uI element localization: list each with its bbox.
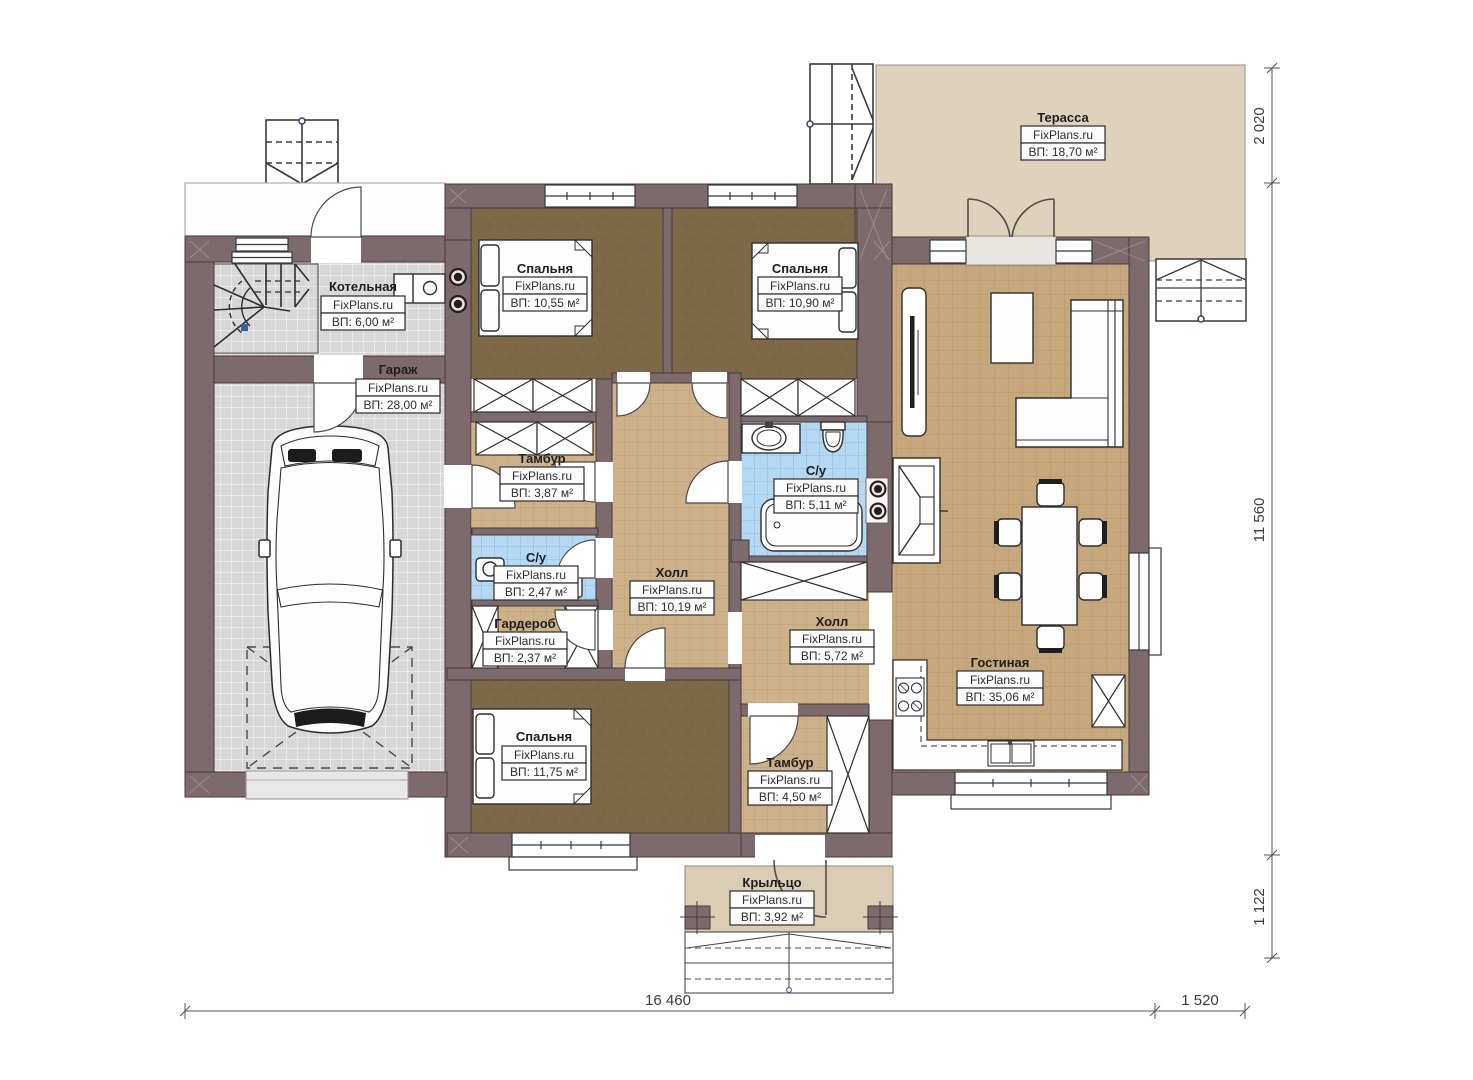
svg-text:ВП: 11,75 м²: ВП: 11,75 м² bbox=[510, 765, 578, 779]
svg-text:16 460: 16 460 bbox=[645, 992, 691, 1009]
svg-text:ВП: 5,11 м²: ВП: 5,11 м² bbox=[785, 498, 846, 512]
svg-text:ВП: 3,87 м²: ВП: 3,87 м² bbox=[511, 486, 573, 500]
svg-text:Гостиная: Гостиная bbox=[971, 655, 1030, 670]
svg-text:FixPlans.ru: FixPlans.ru bbox=[802, 632, 862, 646]
svg-text:Гардероб: Гардероб bbox=[494, 616, 555, 631]
svg-text:Спальня: Спальня bbox=[516, 729, 572, 744]
svg-text:Тамбур: Тамбур bbox=[518, 451, 565, 466]
svg-text:Спальня: Спальня bbox=[772, 261, 828, 276]
svg-text:ВП: 2,37 м²: ВП: 2,37 м² bbox=[494, 651, 556, 665]
svg-text:FixPlans.ru: FixPlans.ru bbox=[642, 583, 702, 597]
svg-text:1 520: 1 520 bbox=[1181, 992, 1219, 1009]
svg-text:FixPlans.ru: FixPlans.ru bbox=[742, 893, 802, 907]
svg-text:FixPlans.ru: FixPlans.ru bbox=[333, 298, 393, 312]
svg-text:ВП: 10,55 м²: ВП: 10,55 м² bbox=[511, 296, 580, 310]
svg-text:Тамбур: Тамбур bbox=[766, 755, 813, 770]
svg-text:FixPlans.ru: FixPlans.ru bbox=[506, 568, 566, 582]
svg-text:FixPlans.ru: FixPlans.ru bbox=[970, 673, 1030, 687]
svg-text:Терасса: Терасса bbox=[1037, 110, 1089, 125]
svg-text:С/у: С/у bbox=[806, 463, 827, 478]
svg-text:FixPlans.ru: FixPlans.ru bbox=[760, 773, 820, 787]
svg-text:FixPlans.ru: FixPlans.ru bbox=[368, 381, 428, 395]
svg-text:Гараж: Гараж bbox=[379, 362, 419, 377]
svg-text:FixPlans.ru: FixPlans.ru bbox=[495, 634, 555, 648]
svg-text:FixPlans.ru: FixPlans.ru bbox=[515, 279, 575, 293]
svg-text:1 122: 1 122 bbox=[1251, 888, 1268, 926]
svg-text:ВП: 10,19 м²: ВП: 10,19 м² bbox=[638, 600, 707, 614]
svg-text:Холл: Холл bbox=[656, 565, 689, 580]
svg-text:С/у: С/у bbox=[526, 550, 547, 565]
svg-text:FixPlans.ru: FixPlans.ru bbox=[514, 748, 574, 762]
svg-text:Спальня: Спальня bbox=[517, 261, 573, 276]
svg-text:ВП: 4,50 м²: ВП: 4,50 м² bbox=[759, 790, 821, 804]
svg-text:11 560: 11 560 bbox=[1251, 498, 1268, 543]
svg-text:FixPlans.ru: FixPlans.ru bbox=[770, 279, 830, 293]
svg-text:FixPlans.ru: FixPlans.ru bbox=[1033, 128, 1093, 142]
svg-text:Крыльцо: Крыльцо bbox=[742, 875, 801, 890]
svg-text:ВП: 28,00 м²: ВП: 28,00 м² bbox=[364, 398, 433, 412]
svg-text:ВП: 5,72 м²: ВП: 5,72 м² bbox=[801, 649, 863, 663]
svg-text:ВП: 3,92 м²: ВП: 3,92 м² bbox=[741, 910, 803, 924]
svg-text:ВП: 6,00 м²: ВП: 6,00 м² bbox=[332, 315, 394, 329]
svg-text:Холл: Холл bbox=[816, 614, 849, 629]
svg-text:FixPlans.ru: FixPlans.ru bbox=[512, 469, 572, 483]
svg-text:Котельная: Котельная bbox=[329, 279, 397, 294]
svg-text:ВП: 35,06 м²: ВП: 35,06 м² bbox=[966, 690, 1035, 704]
svg-text:ВП: 10,90 м²: ВП: 10,90 м² bbox=[766, 296, 835, 310]
svg-text:ВП: 18,70 м²: ВП: 18,70 м² bbox=[1029, 145, 1098, 159]
svg-text:FixPlans.ru: FixPlans.ru bbox=[786, 481, 846, 495]
svg-text:2 020: 2 020 bbox=[1251, 107, 1268, 145]
svg-text:ВП: 2,47 м²: ВП: 2,47 м² bbox=[505, 585, 567, 599]
